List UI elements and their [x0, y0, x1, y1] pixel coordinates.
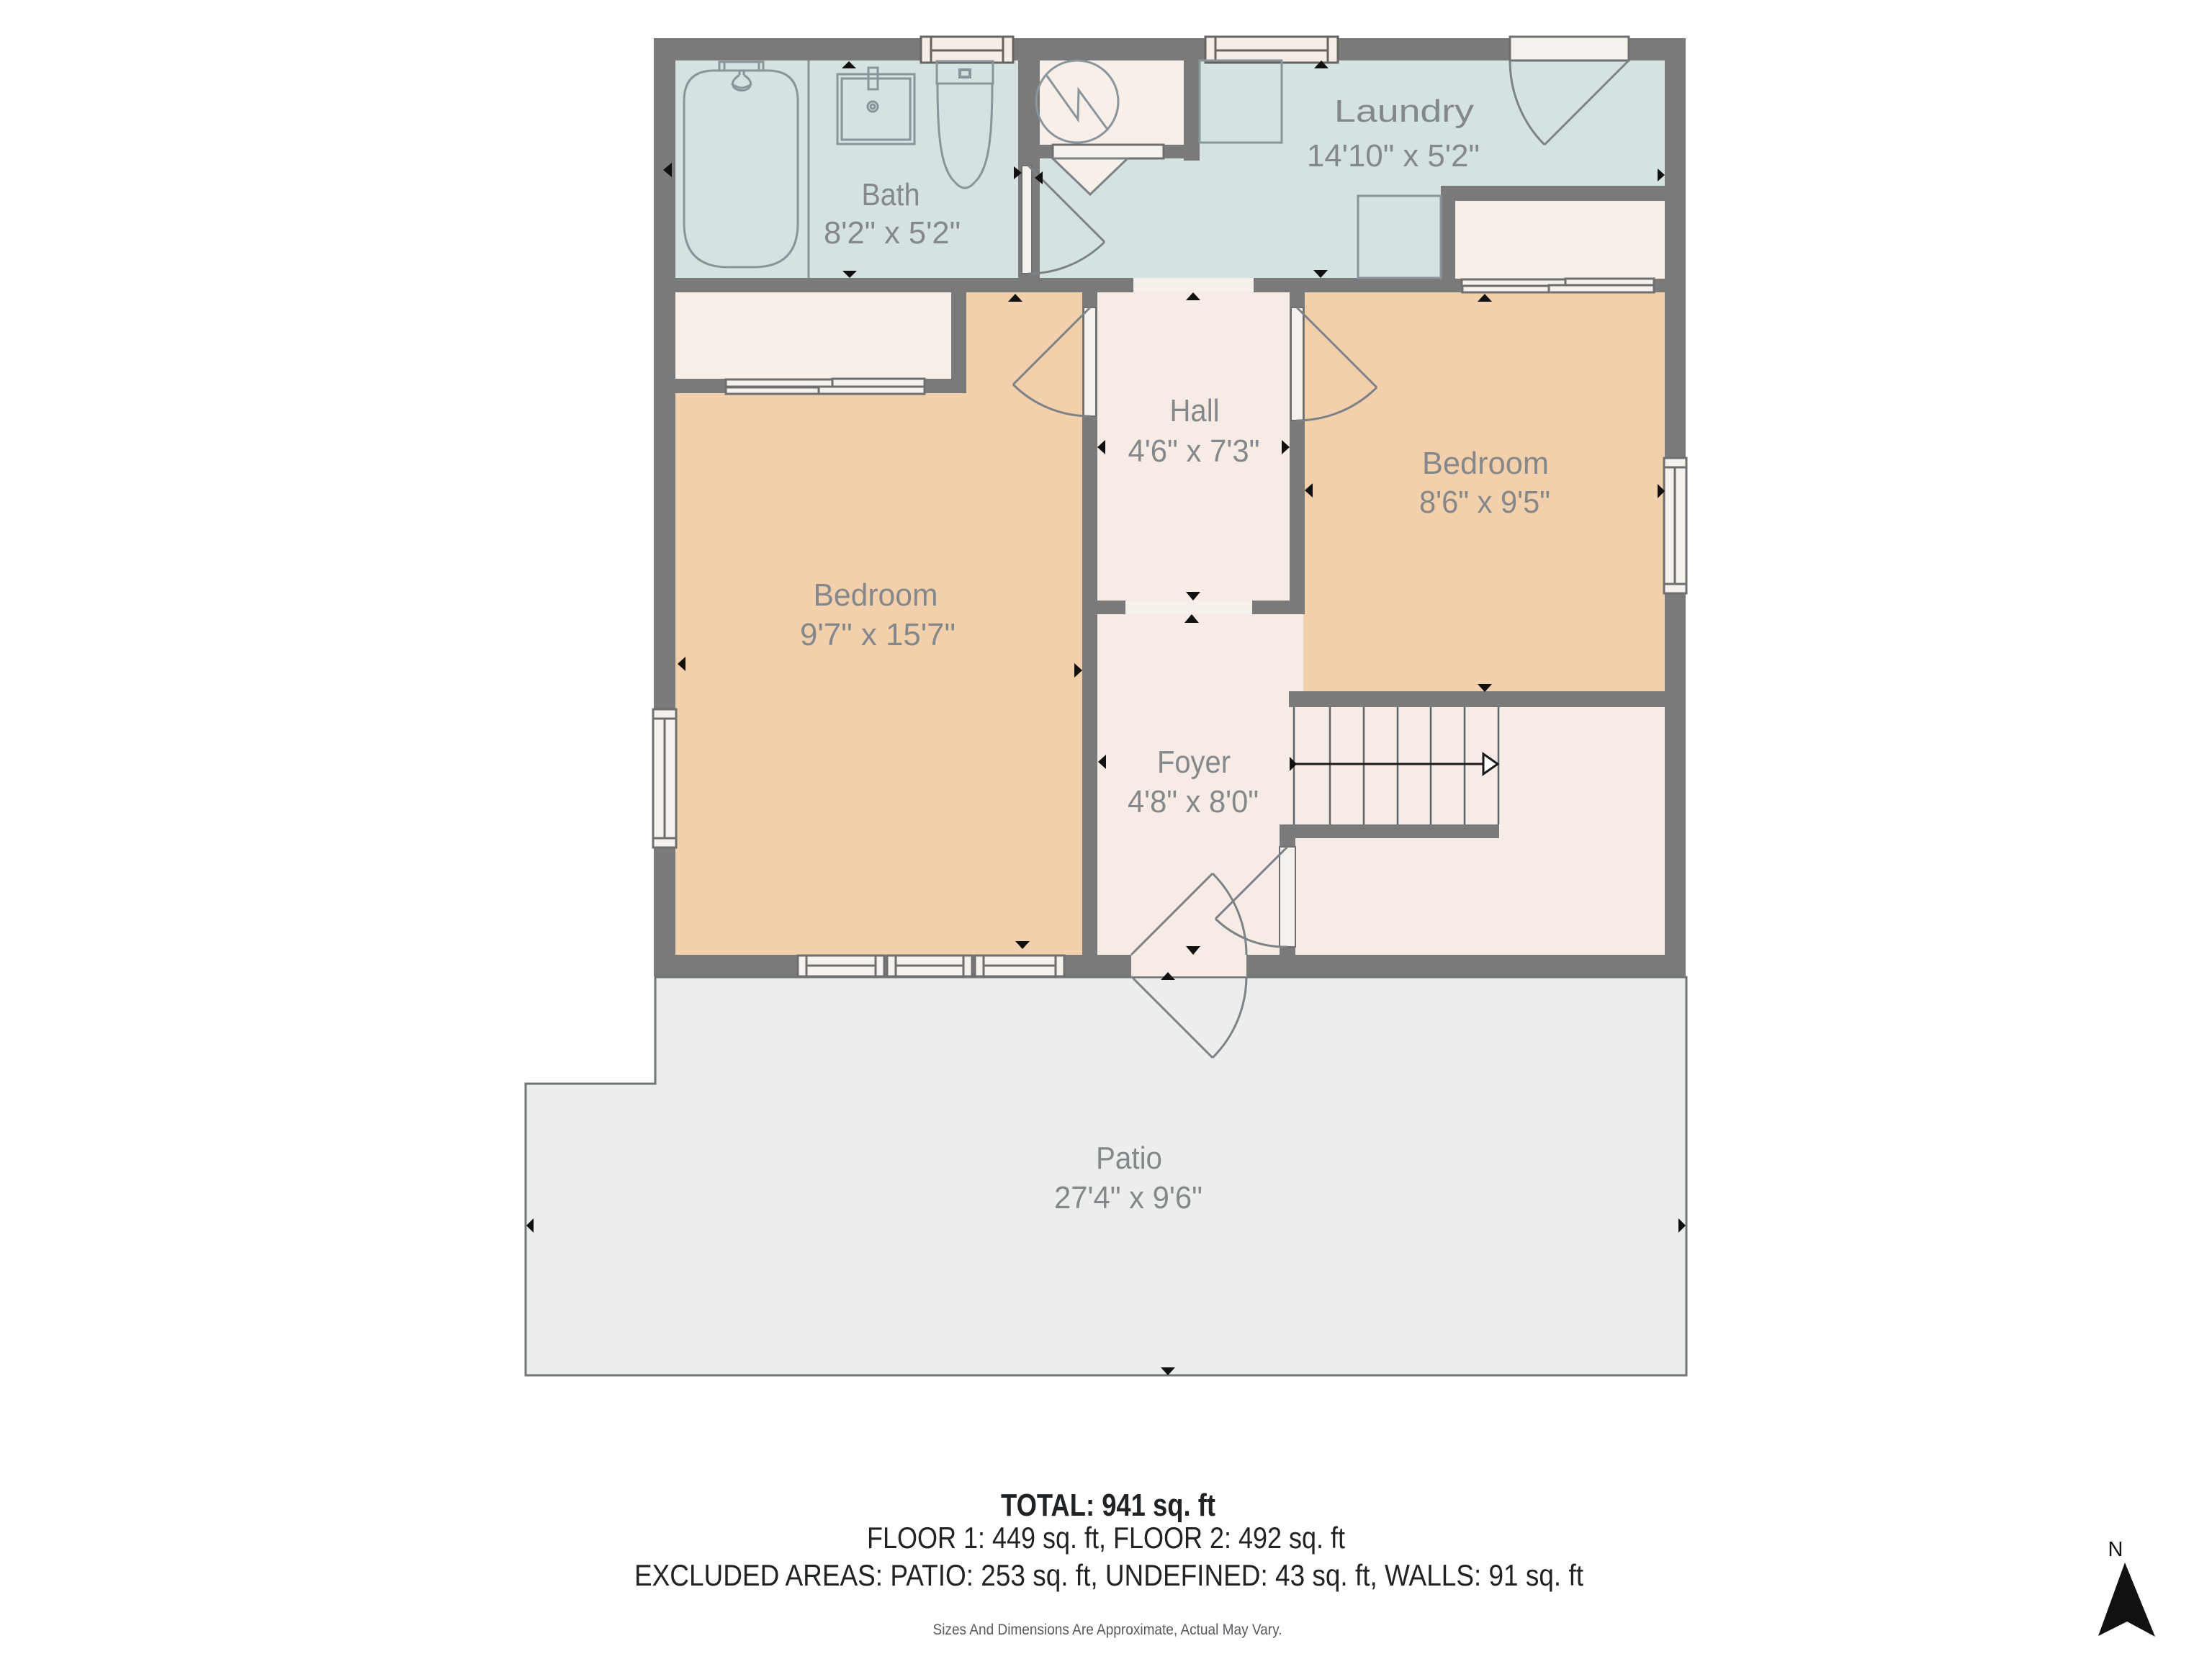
- svg-text:4'6" x 7'3": 4'6" x 7'3": [1128, 433, 1260, 469]
- svg-text:14'10" x 5'2": 14'10" x 5'2": [1307, 138, 1480, 174]
- svg-text:Patio: Patio: [1096, 1141, 1162, 1176]
- svg-text:N: N: [2108, 1538, 2123, 1561]
- svg-text:9'7" x 15'7": 9'7" x 15'7": [800, 617, 956, 652]
- svg-text:EXCLUDED AREAS: PATIO: 253 sq.: EXCLUDED AREAS: PATIO: 253 sq. ft, UNDEF…: [634, 1558, 1583, 1592]
- svg-text:Sizes And Dimensions Are Appro: Sizes And Dimensions Are Approximate, Ac…: [933, 1622, 1282, 1638]
- svg-text:8'6" x 9'5": 8'6" x 9'5": [1419, 485, 1550, 520]
- svg-text:Bedroom: Bedroom: [1422, 446, 1549, 481]
- svg-text:Foyer: Foyer: [1157, 745, 1231, 780]
- svg-text:4'8" x 8'0": 4'8" x 8'0": [1128, 784, 1259, 819]
- svg-text:8'2" x 5'2": 8'2" x 5'2": [824, 215, 961, 251]
- svg-text:Bedroom: Bedroom: [814, 577, 938, 613]
- svg-text:Laundry: Laundry: [1334, 94, 1474, 129]
- svg-text:27'4" x 9'6": 27'4" x 9'6": [1054, 1180, 1202, 1215]
- svg-text:Hall: Hall: [1170, 393, 1220, 428]
- svg-text:TOTAL: 941 sq. ft: TOTAL: 941 sq. ft: [1001, 1488, 1215, 1523]
- svg-text:Bath: Bath: [862, 177, 920, 212]
- svg-text:FLOOR 1: 449 sq. ft, FLOOR 2:: FLOOR 1: 449 sq. ft, FLOOR 2: 492 sq. ft: [867, 1521, 1345, 1555]
